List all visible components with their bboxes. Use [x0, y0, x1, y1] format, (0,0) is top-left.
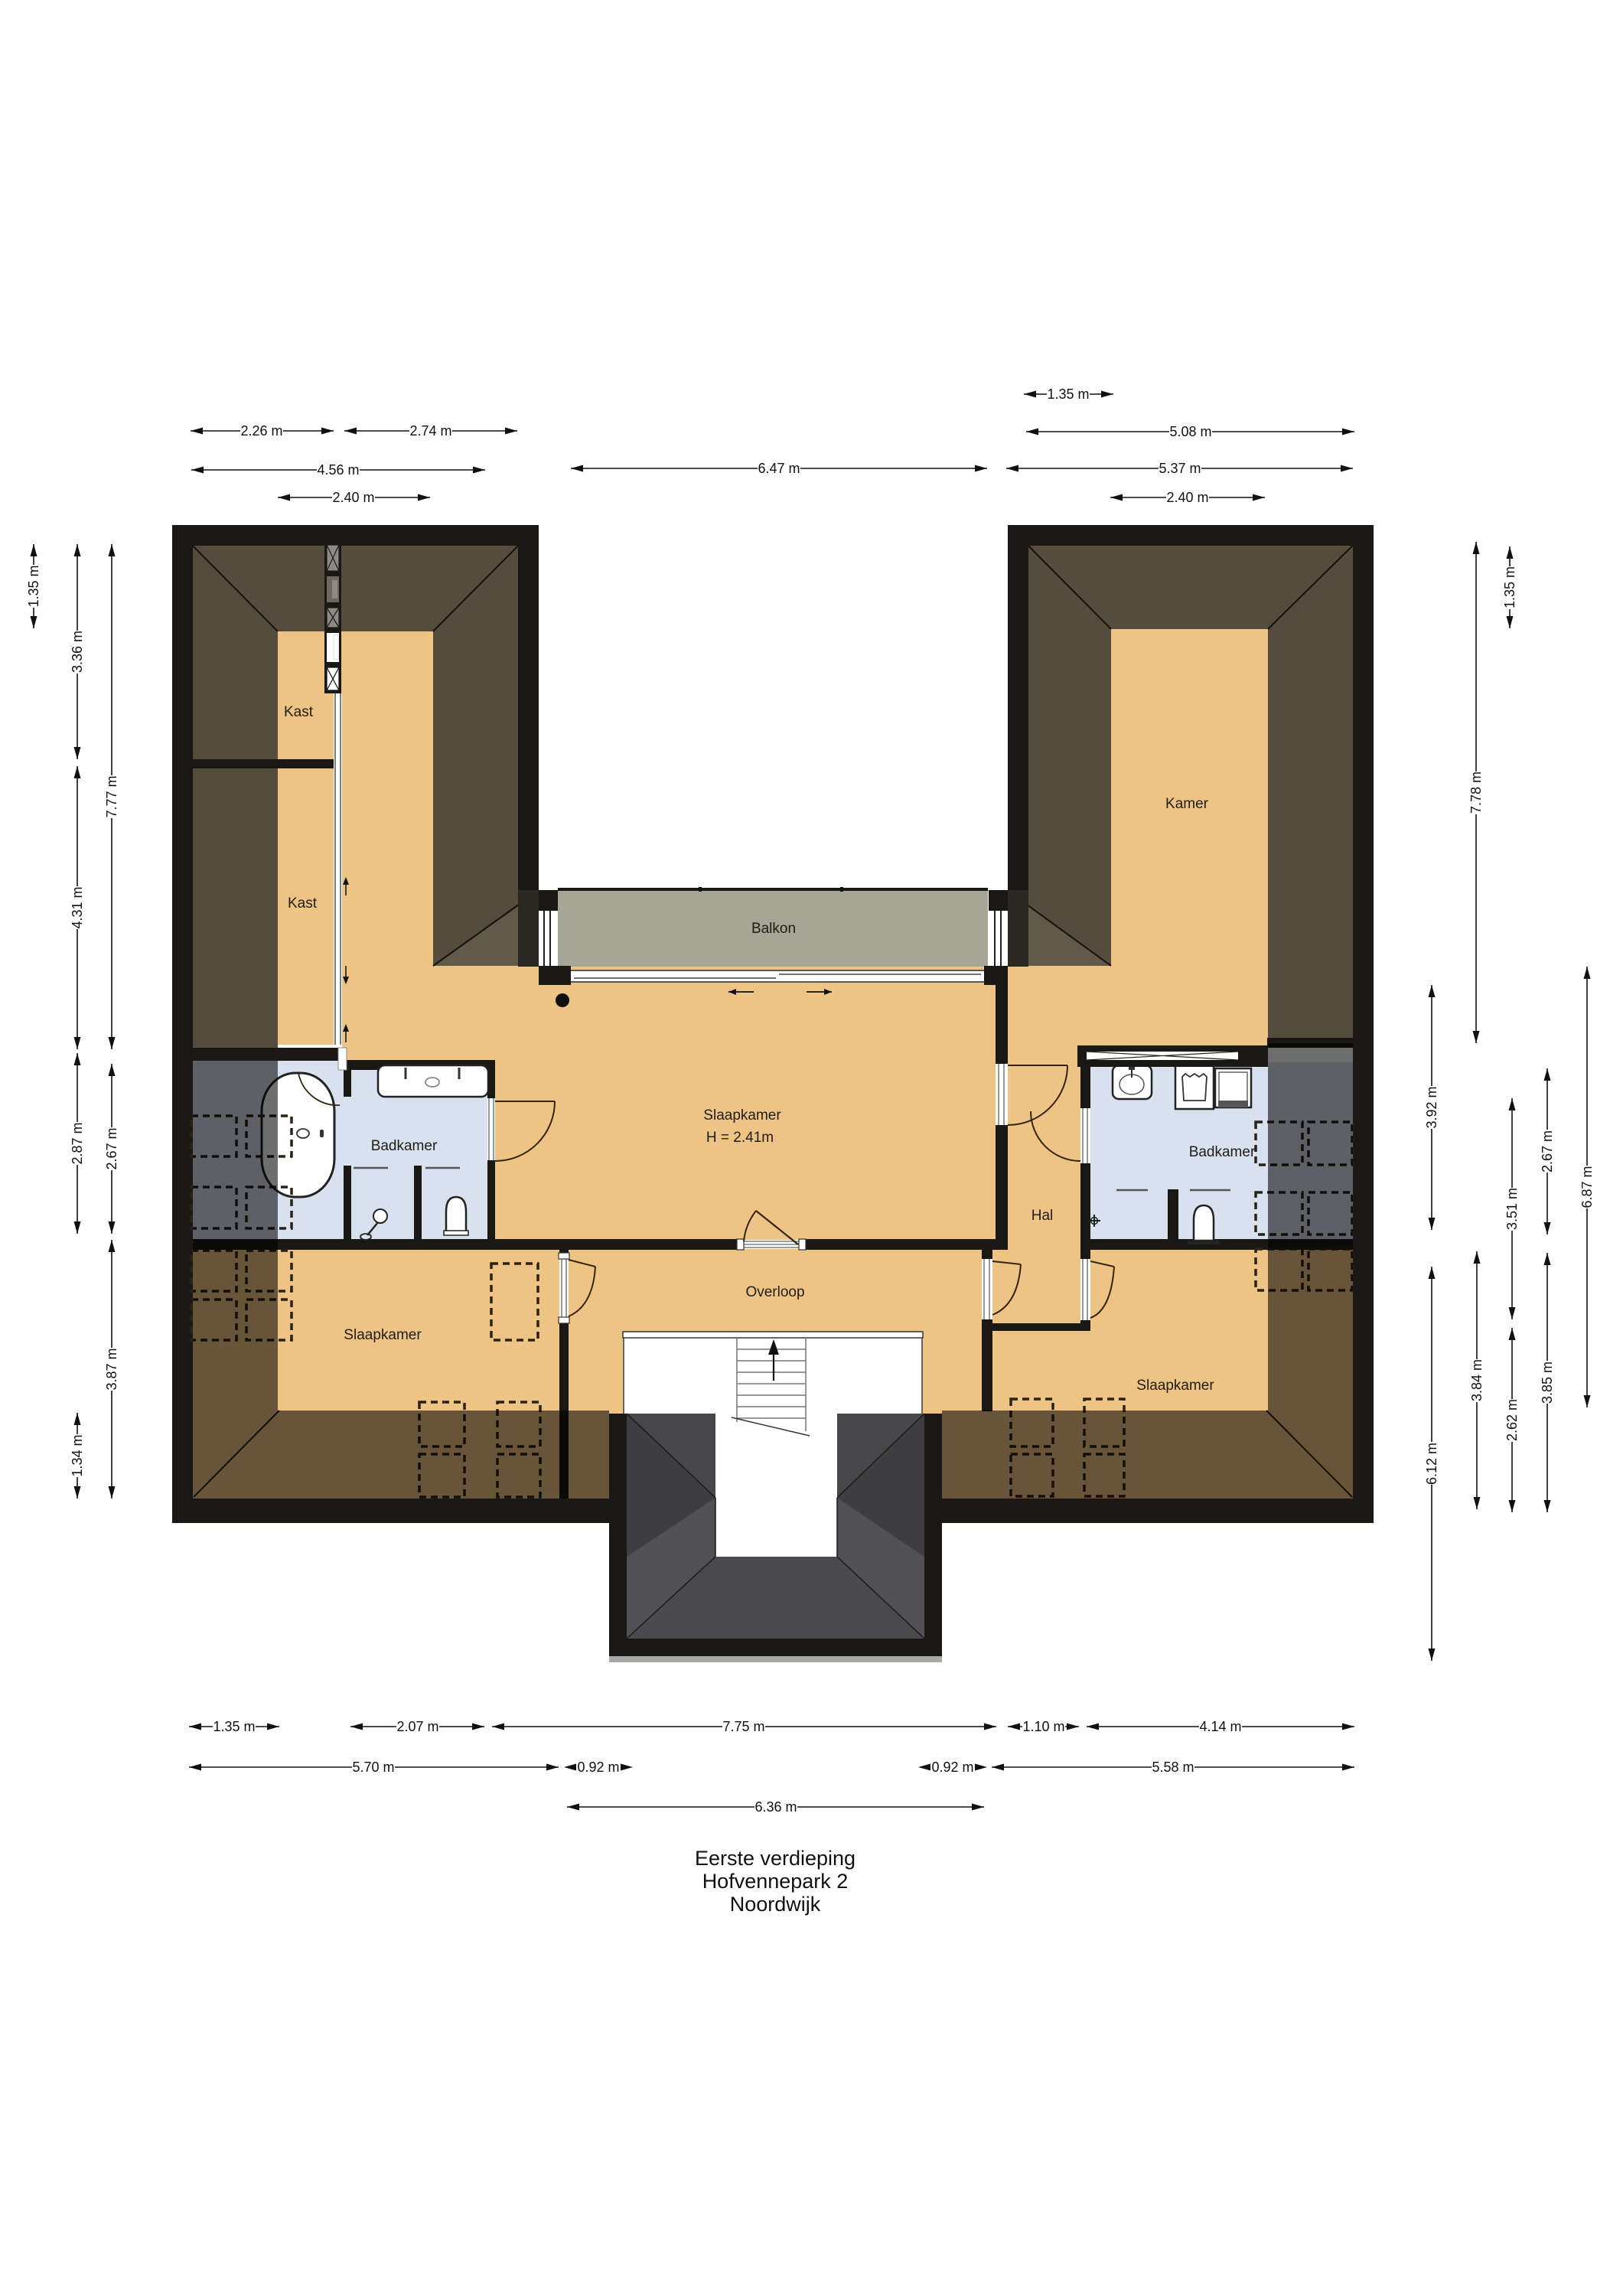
svg-text:H = 2.41m: H = 2.41m	[706, 1130, 774, 1146]
svg-text:2.62 m: 2.62 m	[1504, 1399, 1520, 1441]
svg-text:Slaapkamer: Slaapkamer	[344, 1327, 422, 1343]
svg-text:1.34 m: 1.34 m	[70, 1434, 85, 1476]
svg-text:3.85 m: 3.85 m	[1540, 1362, 1555, 1404]
svg-text:3.36 m: 3.36 m	[70, 631, 85, 673]
svg-text:2.07 m: 2.07 m	[396, 1719, 438, 1734]
svg-text:Hal: Hal	[1031, 1208, 1054, 1224]
svg-text:6.36 m: 6.36 m	[754, 1799, 797, 1815]
svg-text:2.67 m: 2.67 m	[1540, 1130, 1555, 1172]
svg-text:Balkon: Balkon	[751, 921, 796, 937]
svg-text:Slaapkamer: Slaapkamer	[703, 1107, 781, 1124]
svg-text:4.31 m: 4.31 m	[70, 886, 85, 928]
svg-text:2.87 m: 2.87 m	[70, 1122, 85, 1164]
svg-text:1.35 m: 1.35 m	[1047, 386, 1089, 402]
svg-text:2.26 m: 2.26 m	[240, 423, 282, 439]
svg-text:7.75 m: 7.75 m	[722, 1719, 764, 1734]
svg-text:Kast: Kast	[288, 895, 318, 912]
svg-text:3.84 m: 3.84 m	[1469, 1359, 1484, 1401]
svg-text:5.58 m: 5.58 m	[1152, 1760, 1194, 1775]
svg-text:6.47 m: 6.47 m	[758, 461, 800, 476]
svg-text:5.08 m: 5.08 m	[1169, 424, 1211, 439]
svg-text:2.67 m: 2.67 m	[104, 1127, 119, 1169]
svg-text:0.92 m: 0.92 m	[577, 1760, 619, 1775]
svg-text:4.14 m: 4.14 m	[1199, 1719, 1241, 1734]
svg-text:2.74 m: 2.74 m	[409, 423, 451, 439]
svg-text:Badkamer: Badkamer	[1189, 1144, 1256, 1160]
svg-text:Slaapkamer: Slaapkamer	[1136, 1378, 1214, 1394]
svg-text:2.40 m: 2.40 m	[1166, 490, 1208, 505]
svg-text:4.56 m: 4.56 m	[317, 462, 359, 478]
svg-text:Overloop: Overloop	[745, 1284, 804, 1300]
svg-text:1.35 m: 1.35 m	[213, 1719, 255, 1734]
svg-text:6.87 m: 6.87 m	[1579, 1166, 1595, 1208]
svg-text:7.77 m: 7.77 m	[104, 775, 119, 817]
svg-text:1.35 m: 1.35 m	[26, 565, 41, 607]
svg-text:3.87 m: 3.87 m	[104, 1348, 119, 1390]
svg-text:Badkamer: Badkamer	[371, 1138, 438, 1154]
svg-text:3.51 m: 3.51 m	[1504, 1188, 1520, 1230]
svg-text:Kast: Kast	[284, 704, 314, 720]
svg-text:Kamer: Kamer	[1165, 796, 1209, 812]
svg-text:7.78 m: 7.78 m	[1468, 771, 1484, 814]
svg-text:0.92 m: 0.92 m	[931, 1760, 973, 1775]
svg-text:Eerste verdieping: Eerste verdieping	[695, 1847, 855, 1870]
svg-text:5.70 m: 5.70 m	[352, 1760, 394, 1775]
svg-text:3.92 m: 3.92 m	[1424, 1086, 1439, 1128]
svg-text:5.37 m: 5.37 m	[1159, 461, 1201, 476]
svg-text:2.40 m: 2.40 m	[332, 490, 374, 505]
svg-text:Hofvennepark 2: Hofvennepark 2	[702, 1870, 849, 1893]
svg-text:Noordwijk: Noordwijk	[730, 1893, 821, 1916]
svg-text:1.10 m: 1.10 m	[1022, 1719, 1064, 1734]
svg-text:6.12 m: 6.12 m	[1424, 1443, 1439, 1485]
svg-text:1.35 m: 1.35 m	[1502, 566, 1517, 608]
